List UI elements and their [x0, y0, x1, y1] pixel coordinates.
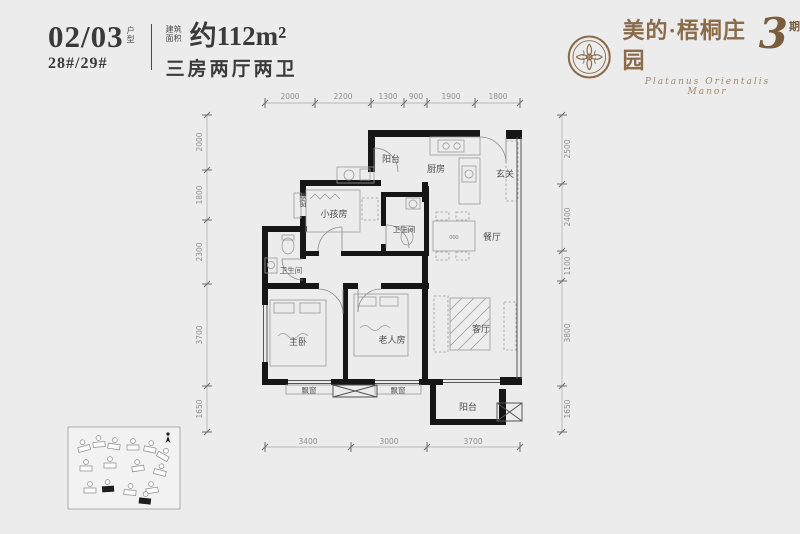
dim-bottom-2: 3000 — [379, 437, 398, 446]
dim-top-3: 1300 — [378, 92, 397, 101]
floorplan-page: 02/03 户型 28#/29# 建筑面积 约112m² 三房两厅两卫 美的·梧… — [0, 0, 800, 534]
dim-right-3: 1100 — [563, 256, 572, 275]
room-labels: 阳台 厨房 玄关 飘窗 小孩房 卫生间 餐厅 卫生间 主卧 老人房 客厅 飘窗 … — [280, 153, 514, 412]
label-bath-2: 卫生间 — [280, 265, 303, 275]
site-map — [68, 427, 180, 509]
label-kitchen: 厨房 — [427, 163, 445, 174]
dim-right-4: 3800 — [563, 323, 572, 342]
dim-bottom-3: 3700 — [463, 437, 482, 446]
dim-top-6: 1800 — [488, 92, 507, 101]
label-entry: 玄关 — [496, 168, 514, 179]
elder-bed — [354, 294, 408, 356]
dimension-lines: 2000 2200 1300 900 1900 1800 2000 1800 2… — [195, 92, 572, 452]
label-bay-window-left: 飘窗 — [298, 192, 307, 209]
bath1-fixtures — [401, 198, 420, 245]
label-dining: 餐厅 — [483, 231, 501, 242]
label-balcony-top: 阳台 — [382, 153, 400, 164]
dim-top-5: 1900 — [441, 92, 460, 101]
dim-top-1: 2000 — [280, 92, 299, 101]
dim-top-4: 900 — [409, 92, 424, 101]
label-master-bedroom: 主卧 — [289, 336, 307, 347]
dim-bottom-1: 3400 — [298, 437, 317, 446]
dim-right-5: 1650 — [563, 399, 572, 418]
label-balcony-bottom: 阳台 — [459, 401, 477, 412]
label-elder-room: 老人房 — [378, 334, 405, 345]
label-kids-room: 小孩房 — [320, 208, 347, 219]
dim-left-2: 1800 — [195, 185, 204, 204]
dim-left-5: 1650 — [195, 399, 204, 418]
dim-left-3: 2300 — [195, 242, 204, 261]
dim-right-2: 2400 — [563, 207, 572, 226]
label-bath-1: 卫生间 — [393, 224, 416, 234]
master-bed — [270, 300, 326, 366]
dim-left-4: 3700 — [195, 325, 204, 344]
label-living-room: 客厅 — [472, 323, 490, 334]
label-bay-window-bottom-1: 飘窗 — [302, 385, 317, 395]
label-bay-window-bottom-2: 飘窗 — [391, 385, 406, 395]
dim-top-2: 2200 — [333, 92, 352, 101]
dim-left-1: 2000 — [195, 132, 204, 151]
fixed-window-icon — [333, 385, 377, 397]
floor-plan: 2000 2200 1300 900 1900 1800 2000 1800 2… — [0, 0, 800, 534]
label-dining-table: 000 — [449, 235, 458, 241]
dim-right-1: 2500 — [563, 139, 572, 158]
